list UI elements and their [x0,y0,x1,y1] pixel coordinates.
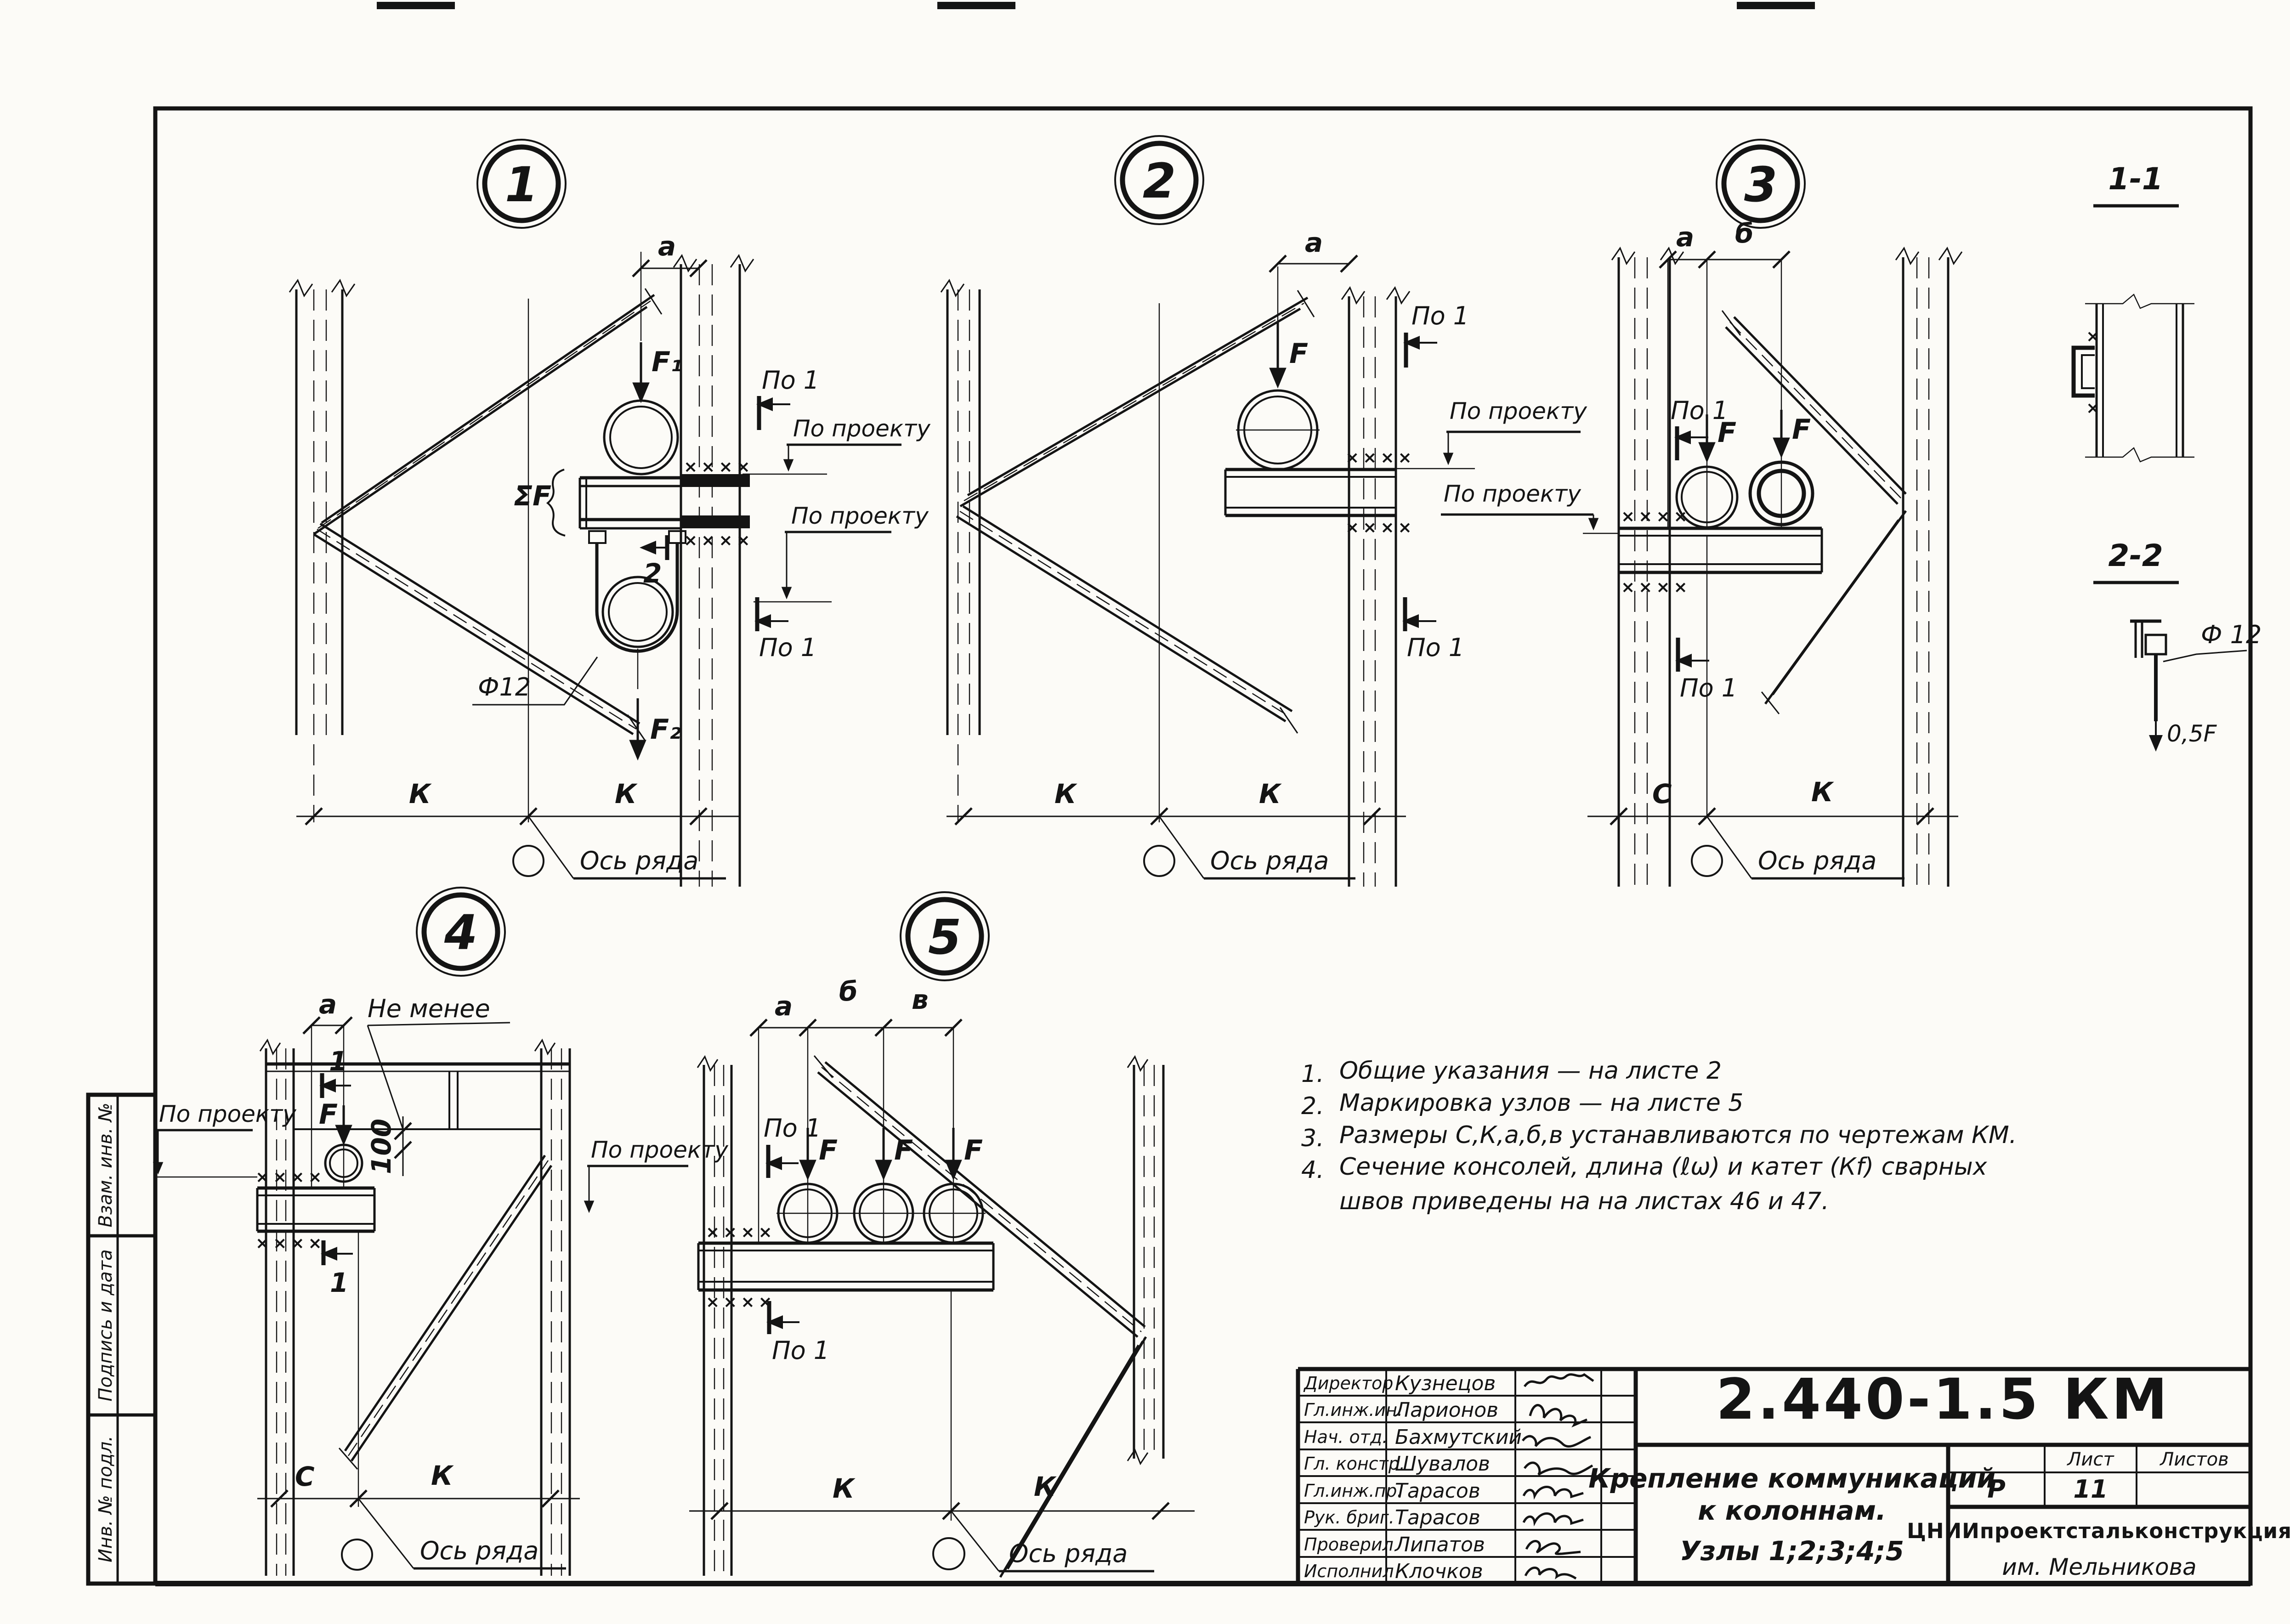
signature-squiggle [1526,1541,1581,1554]
organization-name: ЦНИИпроектстальконструкция [1907,1519,2290,1543]
ne-menee-label: Не менее [368,994,490,1023]
po1-label: По 1 [759,633,816,662]
po-proektu-label: По проекту [791,503,929,529]
force-f1: F₁ [641,342,682,400]
force-label-sum: ΣF [514,480,551,512]
signature-name: Тарасов [1395,1506,1480,1529]
signature-name: Кузнецов [1395,1372,1496,1395]
drawing-sheet: Взам. инв. № Подпись и дата Инв. № подл.… [0,0,2290,1624]
po-proektu-callout-upper: По проекту [1396,398,1587,469]
node-5-detail: 5 a б в F F [689,892,1195,1577]
diagonal-brace-upper [814,1056,1145,1337]
force-label-f1: F₁ [652,346,682,378]
signature-squiggle [1525,1567,1576,1579]
weld-marks: ×××× [1345,448,1416,467]
row-axis-callout: Ось ряда [342,1499,566,1570]
po-proektu-callout-left: По проекту [155,1101,297,1177]
signature-squiggle [1525,1375,1593,1386]
dimension-a-b: a б [1660,218,1790,268]
ne-menee-callout: Не менее [368,994,510,1129]
weld-marks: ×××× [1621,578,1691,597]
left-column [697,1057,731,1576]
signature-name: Липатов [1394,1533,1485,1556]
force-f: F [1278,266,1308,385]
main-column [674,255,754,887]
node-number: 5 [928,909,961,965]
node-number-bubble: 5 [901,892,989,980]
left-column [941,280,980,822]
po-proektu-callout-lower: По проекту [1441,481,1593,528]
half-f-label: 0,5F [2167,720,2217,747]
note-number: 2. [1301,1092,1324,1120]
po-proektu-label: По проекту [1444,481,1581,507]
po1-label: По 1 [1411,301,1469,330]
welded-channel: × × [2074,327,2103,418]
note-text: Общие указания — на листе 2 [1339,1057,1722,1085]
section-1-label: 1 [330,1267,348,1298]
break-mark [535,1040,555,1054]
section-title: 2-2 [2108,538,2163,573]
bottom-dimension: К К [689,1290,1195,1521]
dim-label-a: a [775,990,793,1022]
registration-mark [1737,2,1815,9]
force-f: F [319,1098,344,1142]
weld-mark: × [2086,399,2103,418]
row-axis-callout: Ось ряда [1144,816,1355,878]
view-po1-bottom: По 1 [757,597,816,662]
weld-marks: ×××× [1621,507,1691,526]
break-mark [1128,1450,1148,1464]
force-label-f: F [1289,338,1308,370]
note-text: Размеры С,К,а,б,в устанавливаются по чер… [1339,1121,2017,1149]
signature-name: Бахмутский [1395,1426,1522,1449]
break-mark [1128,1057,1148,1070]
dim-label-a: a [1676,221,1694,253]
upper-pipe [604,401,678,474]
doc-title-line1: Крепление коммуникаций [1588,1463,1995,1494]
weld-marks: ×××× [684,531,754,550]
po-proektu-label: По проекту [793,415,931,442]
weld-marks: ×××× [255,1234,326,1253]
diagonal-brace-upper [314,289,662,534]
section-1-mark-bottom: 1 [323,1240,353,1298]
signature-role: Гл. констр. [1304,1454,1405,1474]
stamp-stage: Р [1987,1475,2006,1504]
row-axis-callout: Ось ряда [933,1511,1154,1571]
break-mark [1939,248,1962,264]
diagonal-brace-lower [957,506,1298,733]
nut [589,531,606,543]
break-mark [1342,288,1365,303]
dim-label-100: 100 [366,1119,397,1174]
signature-role: Нач. отд. [1304,1427,1388,1447]
dim-label-a: a [1305,227,1323,258]
note-number: 1. [1301,1060,1324,1088]
note-text-continued: швов приведены на на листах 46 и 47. [1339,1188,1829,1215]
doc-title-line2: к колоннам. [1698,1495,1886,1526]
break-line-bottom [2085,448,2194,462]
section-2-label: 2 [643,558,662,589]
stamp-listov-label: Листов [2159,1449,2228,1470]
node-1-detail: 1 [289,140,931,887]
bottom-dimension: К К [296,778,741,825]
left-column [289,280,355,822]
break-mark [731,255,754,271]
row-axis-callout: Ось ряда [513,816,726,878]
signature-name: Тарасов [1395,1479,1480,1503]
signature-squiggle [1524,1513,1583,1523]
notes-list: 1. Общие указания — на листе 2 2. Маркир… [1301,1057,2017,1215]
weld-marks: ×××× [255,1168,326,1187]
weld-marks: ×××× [706,1293,776,1312]
phi12-callout: Ф12 [472,657,597,705]
pipe [1236,390,1320,470]
console-beam [257,1188,374,1231]
node-number-bubble: 4 [417,888,505,976]
po1-label: По 1 [772,1336,829,1365]
registration-mark [377,2,455,9]
view-po1-bottom: По 1 [769,1301,829,1365]
dimension-100: 100 [366,1116,411,1176]
break-line-top [2085,294,2194,308]
break-mark [1896,248,1919,264]
node-number-bubble: 2 [1115,136,1203,224]
dim-label-k: К [1811,776,1834,808]
signature-role: Гл.инж.пр. [1304,1481,1402,1501]
sheet-frame [155,2,2250,1584]
break-mark [289,280,312,296]
signature-role: Проверил [1304,1534,1394,1555]
view-po1-bottom: По 1 [1678,638,1737,702]
dim-label-a: a [658,231,676,262]
signature-role: Исполнил [1304,1561,1394,1581]
note-number: 3. [1301,1125,1324,1152]
dim-label-v: в [912,984,929,1015]
section-2-2-view: 2-2 0,5F Ф 12 [2093,538,2262,749]
note-number: 4. [1301,1156,1324,1184]
dim-label-a: a [319,989,337,1020]
signature-role: Директор [1303,1373,1393,1393]
dimension-a: a [1270,227,1357,272]
force-f-2: F [884,1128,913,1177]
po1-label: По 1 [1671,396,1728,425]
signature-table-text: Директор Кузнецов Гл.инж.ин. Ларионов На… [1303,1372,1522,1583]
section-1-label: 1 [329,1046,347,1077]
break-mark [941,280,964,296]
node-number: 1 [505,157,538,213]
right-column [1128,1057,1163,1464]
weld-marks: ×××× [706,1223,776,1242]
po-proektu-callout-right: По проекту [587,1137,729,1211]
signature-squiggle [1523,1436,1591,1446]
dim-label-c: С [1652,778,1672,809]
force-label-f: F [1792,413,1811,446]
sidebar-label-podpis: Подпись и дата [95,1249,116,1401]
po1-label: По 1 [764,1114,821,1143]
node-2-detail: 2 [941,136,1593,887]
break-mark [260,1040,280,1054]
drawing-canvas: Взам. инв. № Подпись и дата Инв. № подл.… [0,0,2290,1624]
dim-label-k: К [409,778,432,809]
u-bolt-side-view [2130,621,2166,749]
signature-name: Шувалов [1395,1452,1490,1476]
title-block: Директор Кузнецов Гл.инж.ин. Ларионов На… [1298,1367,2290,1584]
phi12-label: Ф 12 [2201,620,2262,649]
section-2-mark: 2 [642,535,667,589]
lower-pipe [603,577,673,647]
force-label-f2: F₂ [650,713,681,746]
dim-label-k: К [833,1473,856,1504]
document-code: 2.440-1.5 КМ [1716,1367,2170,1432]
phi12-callout: Ф 12 [2163,620,2262,662]
dim-label-b: б [839,976,858,1007]
phi12-label: Ф12 [478,673,531,702]
node-4-detail: 4 a [155,888,729,1576]
force-f2: F₂ [638,649,681,757]
dim-label-c: С [295,1461,315,1492]
main-column [1342,288,1410,887]
dim-label-k: К [1259,778,1282,809]
po-proektu-callout-1: По проекту [743,415,931,474]
os-ryada-label: Ось ряда [580,846,698,875]
dimension-a: a [633,231,707,277]
nut [2146,635,2166,654]
signature-role: Рук. бриг. [1304,1507,1394,1528]
weld-mark: × [2086,327,2103,346]
force-f-pipe2: F [1781,410,1811,455]
sum-force-callout: ΣF [514,470,565,536]
console-beam [698,1243,993,1290]
sidebar-label-vzam: Взам. инв. № [95,1103,116,1228]
view-po1-top: По 1 [764,1114,821,1178]
dim-label-b: б [1735,218,1754,249]
force-label-f: F [319,1098,338,1131]
diagonal-brace-upper [1722,311,1906,504]
diagonal-brace-upper [960,290,1314,506]
sidebar-label-inv: Инв. № подл. [95,1436,116,1562]
console-beam [1225,470,1396,515]
signature-name: Клочков [1395,1560,1483,1583]
dim-label-k: К [615,778,638,809]
po1-label: По 1 [1680,673,1737,702]
row-axis-callout: Ось ряда [1692,536,1905,878]
node-number-bubble: 1 [477,140,566,228]
section-1-1-view: 1-1 × × [2074,161,2194,462]
main-column [1612,248,1683,887]
view-po1-top: По 1 [1406,301,1469,368]
diagonal-brace [339,1155,551,1469]
dim-label-k: К [1034,1471,1057,1502]
os-ryada-label: Ось ряда [1210,846,1329,875]
weld-marks: ×××× [1345,518,1416,537]
signature-squiggle [1524,1487,1583,1497]
dimension-a: a [303,989,352,1188]
note-text: Сечение консолей, длина (ℓω) и катет (Кf… [1339,1153,1988,1181]
dim-label-k: К [1054,778,1077,809]
os-ryada-label: Ось ряда [1758,846,1876,875]
sidebar-inventory-table: Взам. инв. № Подпись и дата Инв. № подл. [88,1095,155,1584]
node-number: 4 [444,905,477,961]
stamp-list-label: Лист [2066,1449,2114,1470]
bottom-dimension: С К [257,1231,580,1507]
force-label-f: F [819,1134,838,1166]
dim-label-k: К [431,1460,454,1491]
signature-name: Ларионов [1394,1398,1498,1422]
section-title: 1-1 [2108,161,2163,197]
node-3-detail: 3 a б F F [1583,140,1962,887]
nut [669,531,686,543]
bottom-dimension: К К [947,778,1406,825]
organization-name-2: им. Мельникова [2002,1554,2196,1580]
signature-role: Гл.инж.ин. [1304,1400,1403,1420]
far-column [1896,248,1962,887]
po1-label: По 1 [1407,633,1464,662]
doc-title-line3: Узлы 1;2;3;4;5 [1680,1535,1904,1567]
break-mark [1387,288,1410,303]
registration-mark [937,2,1015,9]
break-mark [1612,248,1635,264]
po-proektu-label: По проекту [159,1101,297,1127]
diagonal-brace-lower [1762,511,1906,714]
signature-squiggle [1525,1463,1593,1475]
node-number-bubble: 3 [1717,140,1805,228]
node-number: 2 [1143,153,1176,209]
os-ryada-label: Ось ряда [1009,1539,1128,1568]
view-po1-bottom: По 1 [1405,597,1464,662]
note-text: Маркировка узлов — на листе 5 [1339,1089,1743,1117]
force-label-f: F [964,1134,983,1166]
stamp-sheet-number: 11 [2073,1475,2108,1504]
po-proektu-label: По проекту [1450,398,1587,424]
force-f-3: F [953,1128,983,1177]
po-proektu-label: По проекту [591,1137,729,1163]
po-proektu-callout-2: По проекту [754,503,929,602]
po1-label: По 1 [762,366,819,395]
os-ryada-label: Ось ряда [420,1536,538,1565]
node-number: 3 [1744,157,1777,213]
